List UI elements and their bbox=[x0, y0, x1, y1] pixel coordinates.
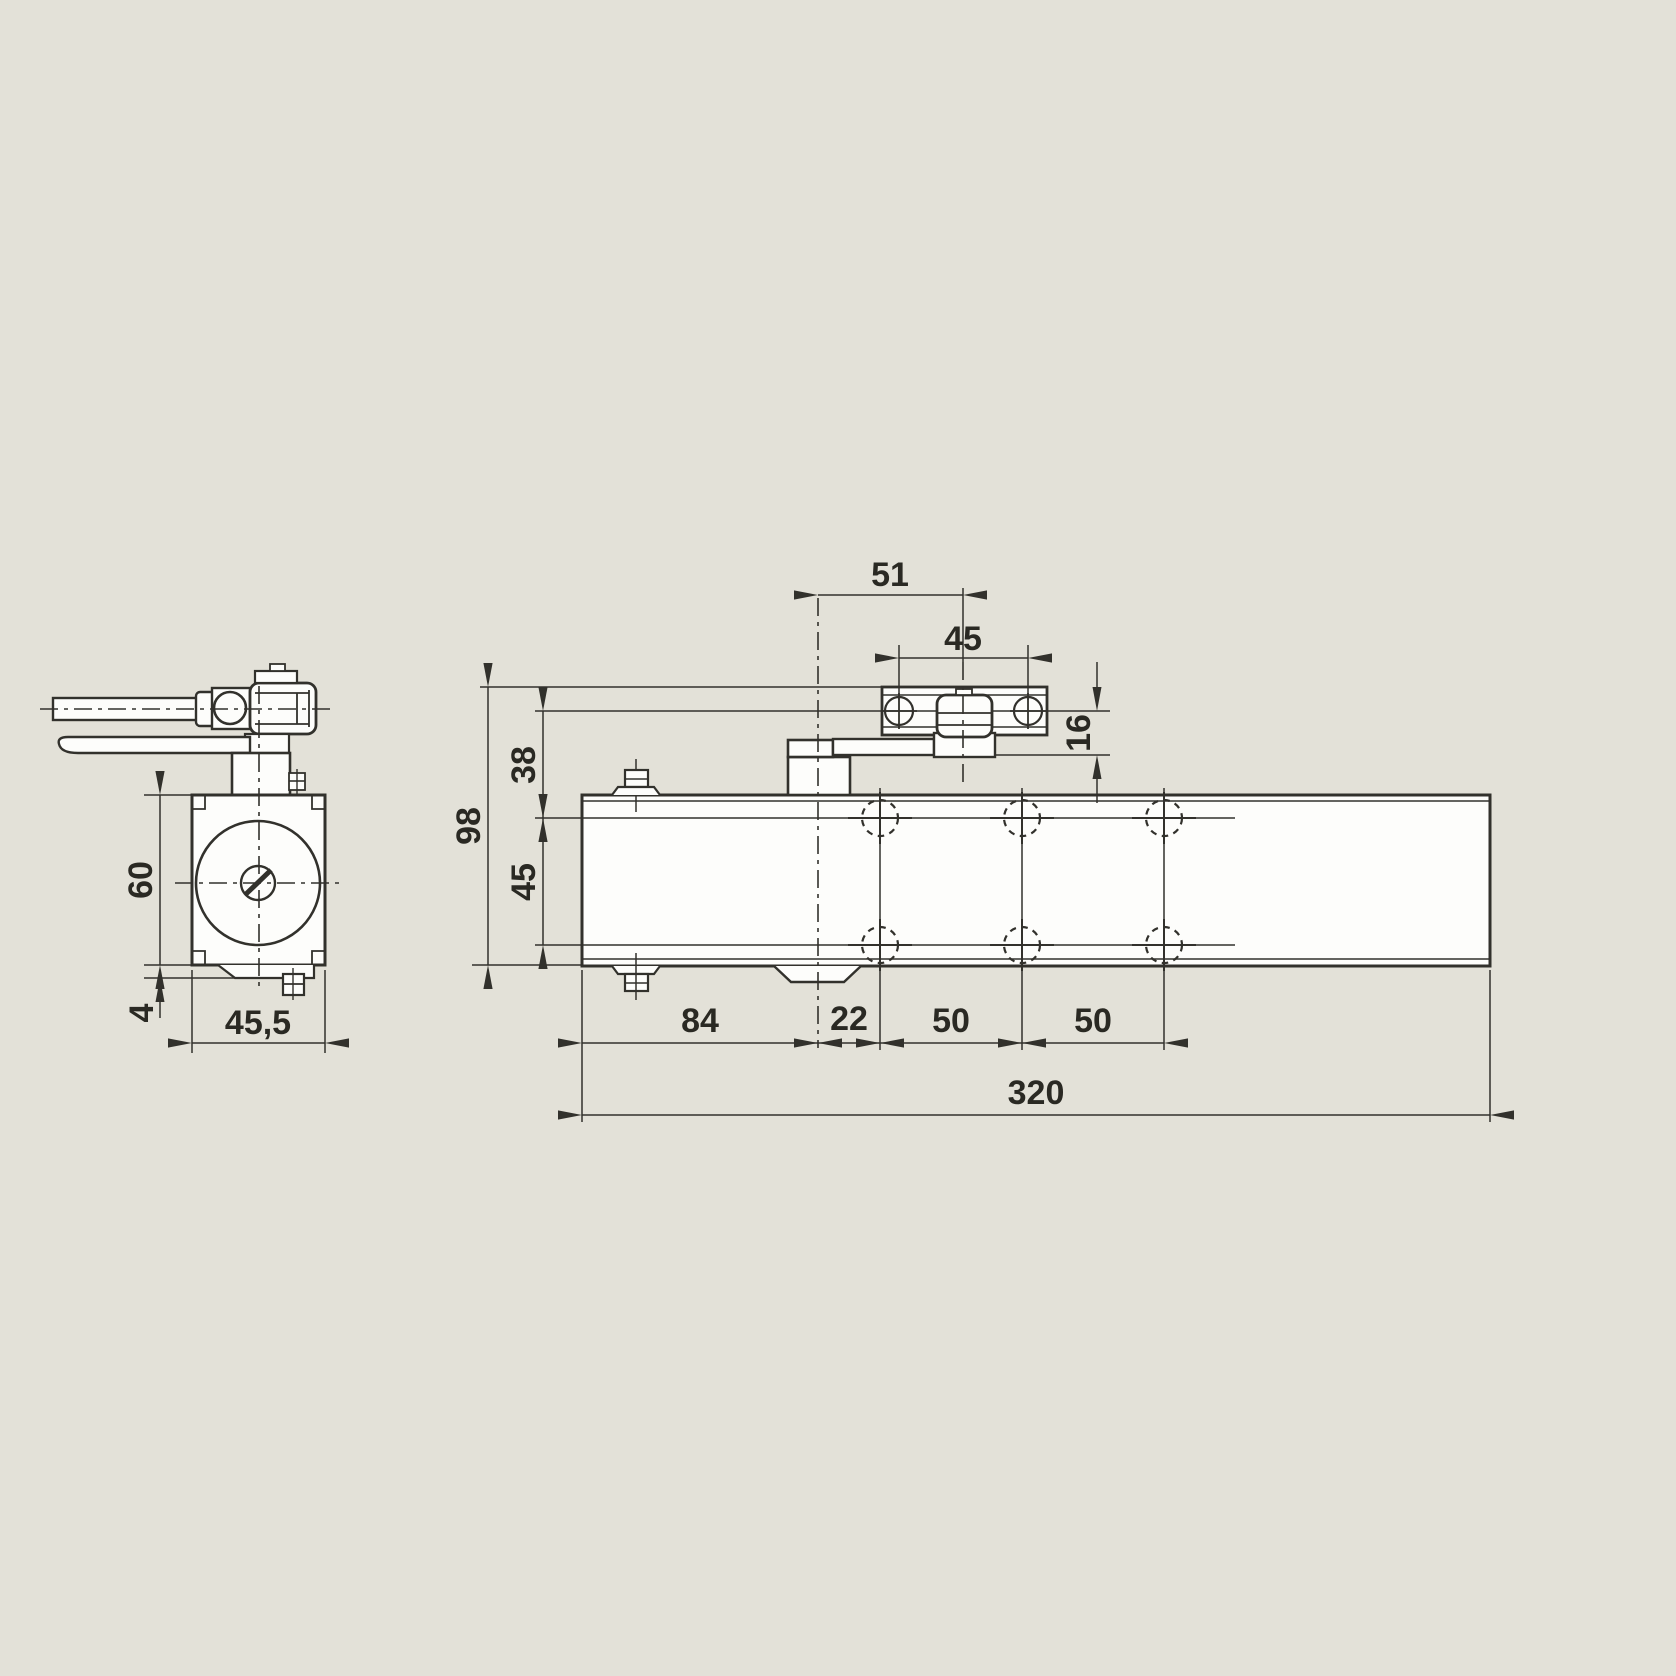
dim-label-38: 38 bbox=[505, 746, 543, 784]
dim-arrow bbox=[156, 978, 165, 1002]
dim-label-98: 98 bbox=[450, 807, 488, 845]
slider-block bbox=[937, 695, 992, 737]
housing-cap bbox=[255, 671, 297, 683]
pinion-hub bbox=[788, 757, 850, 795]
housing-cap-screw bbox=[270, 664, 285, 671]
dim-label-84: 84 bbox=[681, 1002, 719, 1040]
pinion-neck bbox=[232, 753, 290, 795]
valve-screw-base bbox=[612, 787, 660, 795]
elbow-connector bbox=[245, 734, 289, 754]
dim-label-60: 60 bbox=[122, 861, 160, 899]
arm-pivot bbox=[214, 692, 246, 724]
closer-body-front bbox=[582, 795, 1490, 966]
dim-arrow bbox=[1093, 755, 1102, 779]
dim-label-45-vert: 45 bbox=[505, 863, 543, 901]
dim-label-320: 320 bbox=[1008, 1074, 1065, 1112]
dim-arrow bbox=[1093, 687, 1102, 711]
dim-label-22: 22 bbox=[830, 1000, 868, 1038]
dim-label-50b: 50 bbox=[1074, 1002, 1112, 1040]
dim-label-4: 4 bbox=[123, 1003, 161, 1022]
dim-label-50a: 50 bbox=[932, 1002, 970, 1040]
front-view bbox=[535, 598, 1490, 1050]
door-closer-technical-drawing: 60 4 45,5 bbox=[0, 0, 1676, 1676]
lower-arm-blade bbox=[59, 737, 250, 753]
dim-label-45-rail: 45 bbox=[944, 620, 982, 658]
slider-top-notch bbox=[956, 689, 972, 695]
dim-label-45-5: 45,5 bbox=[225, 1004, 291, 1042]
dim-label-51: 51 bbox=[871, 556, 909, 594]
side-view bbox=[40, 664, 341, 1000]
technical-drawing-page: 60 4 45,5 bbox=[0, 0, 1676, 1676]
dim-label-16: 16 bbox=[1060, 714, 1098, 752]
arm-plate bbox=[833, 739, 934, 755]
pinion-hub-cap bbox=[788, 740, 833, 757]
